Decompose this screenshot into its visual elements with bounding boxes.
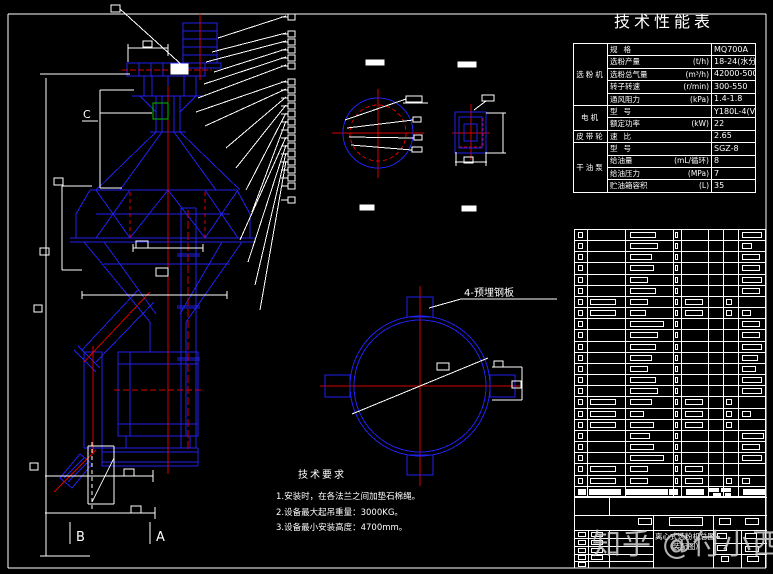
balloon-callouts: [196, 16, 286, 310]
bom-row: [575, 308, 765, 319]
perf-item: 贮油箱容积(L): [608, 180, 712, 192]
bom-row: [575, 342, 765, 353]
perf-group-label: 电机: [574, 105, 608, 130]
perf-item: 通风阻力(kPa): [608, 93, 712, 105]
note-line: 1.安装时，在各法兰之间加垫石棉绳。: [276, 490, 420, 506]
bom-row: [575, 453, 765, 464]
perf-item: 型号: [608, 105, 712, 117]
perf-item: 型号: [608, 143, 712, 155]
perf-row: 电机型号Y180L-4(V5): [574, 105, 756, 117]
bom-row: [575, 476, 765, 487]
bom-row: [575, 464, 765, 475]
perf-item: 给油压力(MPa): [608, 167, 712, 179]
perf-row: 选粉机规格MQ700A: [574, 44, 756, 56]
perf-item: 额定功率(kW): [608, 118, 712, 130]
performance-table-body: 选粉机规格MQ700A选粉产量(t/h)18-24(水分6%)选粉总气量(m³/…: [574, 44, 756, 193]
perf-item: 给油量(mL/循环): [608, 155, 712, 167]
perf-value: 7: [712, 167, 756, 179]
watermark: 知乎 @付小西: [592, 521, 773, 563]
perf-row: 干油泵型号SGZ-8: [574, 143, 756, 155]
cad-viewport: C B A 4-预埋钢板 技术性能表 选粉机规格MQ700A选粉产量(t/h)1…: [0, 0, 773, 574]
perf-item: 转子转速(r/min): [608, 81, 712, 93]
note-line: 2.设备最大起吊重量：3000KG。: [276, 506, 420, 522]
perf-value: 42000-50000: [712, 68, 756, 80]
bom-row: [575, 241, 765, 252]
bom-row: [575, 364, 765, 375]
perf-group-label: 干油泵: [574, 143, 608, 193]
centerlines: [54, 14, 520, 492]
bom-row: [575, 286, 765, 297]
bom-row: [575, 252, 765, 263]
perf-item: 选粉产量(t/h): [608, 56, 712, 68]
bom-row: [575, 431, 765, 442]
bom-row: [575, 319, 765, 330]
perf-value: Y180L-4(V5): [712, 105, 756, 117]
perf-group-label: 选粉机: [574, 44, 608, 106]
perf-group-label: 皮带轮: [574, 130, 608, 142]
bom-row: [575, 375, 765, 386]
bom-row: [575, 275, 765, 286]
bom-row: [575, 386, 765, 397]
performance-table-title: 技术性能表: [573, 8, 755, 32]
perf-value: 35: [712, 180, 756, 192]
bom-row: [575, 442, 765, 453]
section-c-label: C: [83, 108, 91, 121]
perf-value: 2.65: [712, 130, 756, 142]
section-b-label: B: [76, 530, 85, 545]
bom-row: [575, 263, 765, 274]
perf-item: 规格: [608, 44, 712, 56]
bom-row: [575, 297, 765, 308]
perf-value: 8: [712, 155, 756, 167]
perf-row: 皮带轮速比2.65: [574, 130, 756, 142]
embedded-plates-label: 4-预埋钢板: [464, 286, 514, 299]
perf-value: 22: [712, 118, 756, 130]
note-line: 3.设备最小安装高度：4700mm。: [276, 521, 420, 537]
perf-value: SGZ-8: [712, 143, 756, 155]
section-a-label: A: [156, 530, 165, 545]
bom-row: [575, 397, 765, 408]
perf-value: MQ700A: [712, 44, 756, 56]
bom-row: [575, 353, 765, 364]
perf-value: 300-550: [712, 81, 756, 93]
perf-value: 1.4-1.8: [712, 93, 756, 105]
bom-row: [575, 420, 765, 431]
main-elevation-view: [60, 23, 256, 488]
bom-row: [575, 230, 765, 241]
performance-table: 选粉机规格MQ700A选粉产量(t/h)18-24(水分6%)选粉总气量(m³/…: [573, 43, 756, 193]
bom-row: [575, 409, 765, 420]
notes-title: 技术要求: [298, 466, 420, 481]
bom-table: [574, 229, 766, 497]
perf-item: 选粉总气量(m³/h): [608, 68, 712, 80]
perf-item: 速比: [608, 130, 712, 142]
technical-notes: 技术要求 1.安装时，在各法兰之间加垫石棉绳。 2.设备最大起吊重量：3000K…: [276, 466, 420, 537]
bom-row: [575, 330, 765, 341]
perf-value: 18-24(水分6%): [712, 56, 756, 68]
